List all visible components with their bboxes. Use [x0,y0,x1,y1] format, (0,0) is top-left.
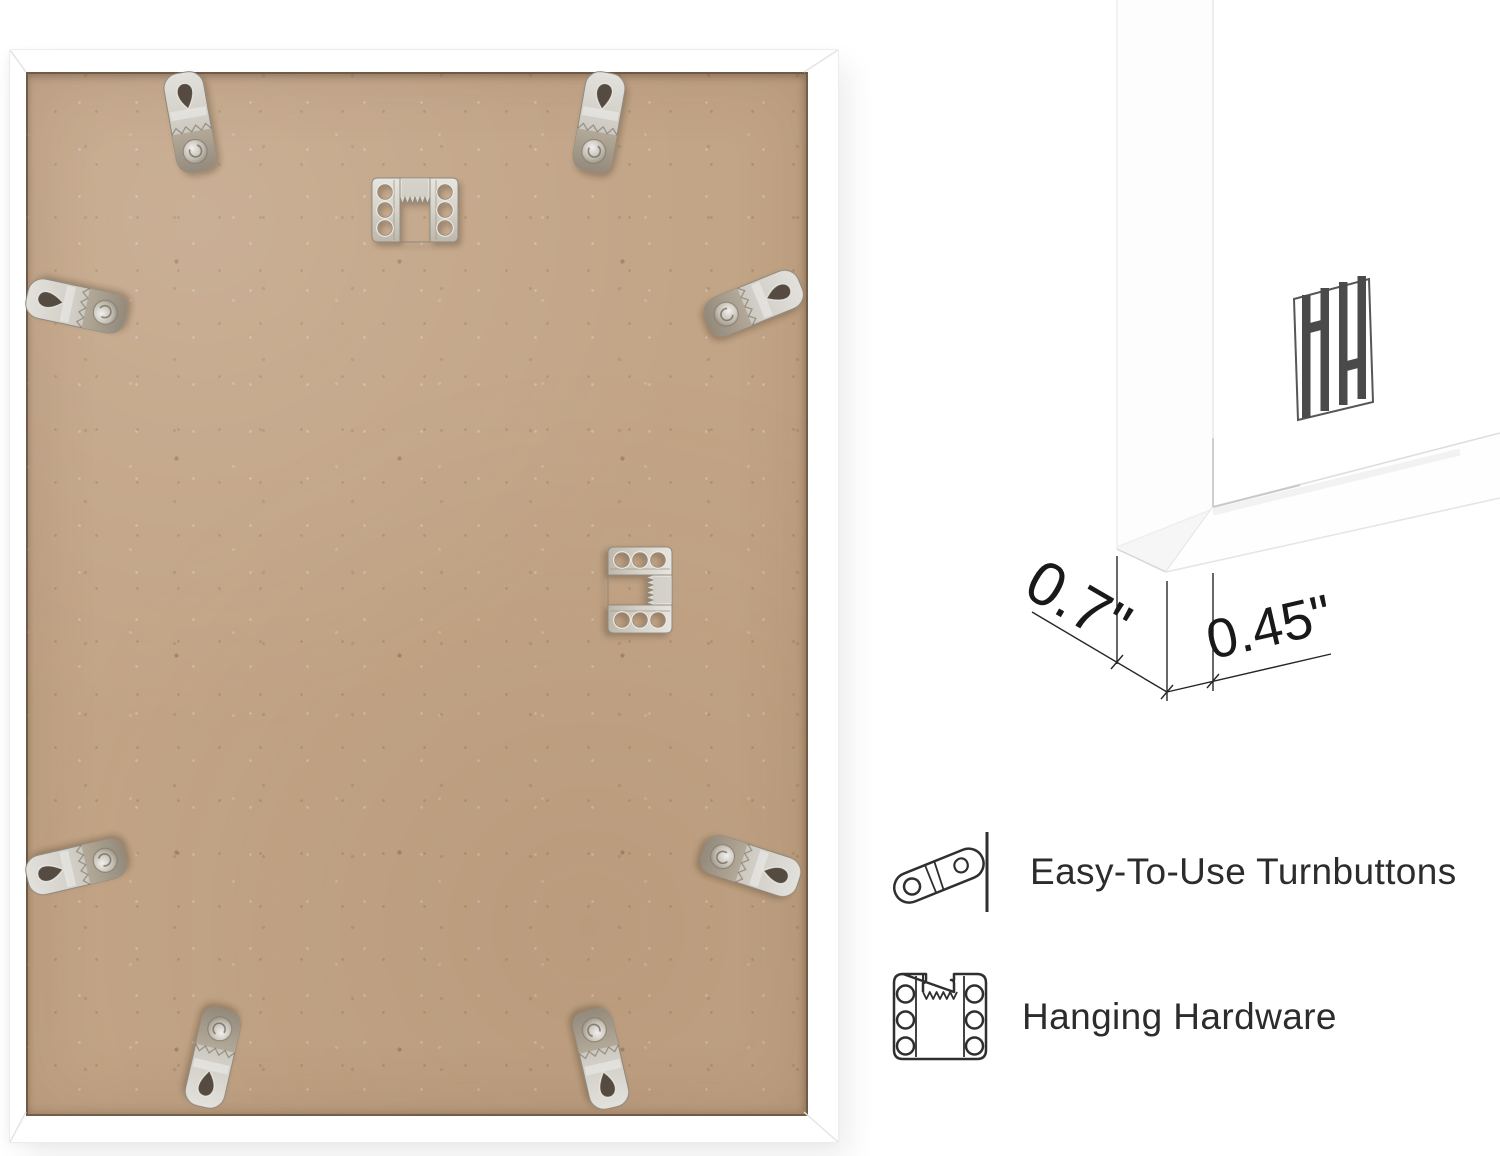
dimension-depth-label: 0.7" [1014,546,1142,660]
dimension-annotations [1032,556,1331,701]
product-image: 0.7" 0.45" Easy-To-Use Turnbuttons [0,0,1500,1156]
hanging-hardware-icon [892,972,988,1061]
dimension-face-label: 0.45" [1200,582,1337,671]
turnbutton-icon [890,830,1002,914]
feature-label: Hanging Hardware [1022,996,1337,1038]
feature-label: Easy-To-Use Turnbuttons [1030,851,1457,893]
frame-back-photo [10,50,838,1142]
feature-turnbuttons: Easy-To-Use Turnbuttons [890,830,1457,914]
hh-logo [1294,276,1373,420]
frame-corner-closeup [1117,0,1500,572]
feature-hanging-hardware: Hanging Hardware [892,972,1337,1061]
mdf-backing-board [26,72,808,1116]
